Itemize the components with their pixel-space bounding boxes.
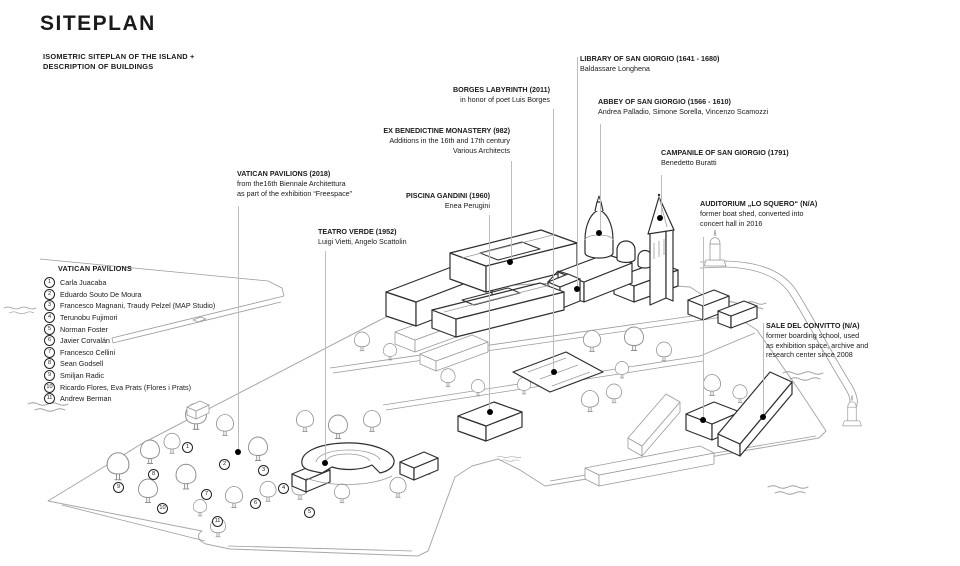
legend-item-10: 10Ricardo Flores, Eva Prats (Flores i Pr… [44, 381, 215, 393]
label-description: concert hall in 2016 [700, 219, 817, 229]
dot-auditorium [700, 417, 706, 423]
dot-teatro [322, 460, 328, 466]
label-description: former boarding school, used [766, 331, 868, 341]
leader-line-vatican [238, 206, 239, 449]
legend-number-badge: 3 [44, 300, 55, 311]
page-subtitle: ISOMETRIC SITEPLAN OF THE ISLAND + DESCR… [43, 52, 195, 71]
lighthouse-icon [704, 230, 726, 266]
label-title: AUDITORIUM „LO SQUERO“ (N/A) [700, 199, 817, 209]
map-marker-8: 8 [148, 469, 159, 480]
legend-architect-name: Norman Foster [60, 325, 108, 334]
label-borges: BORGES LABYRINTH (2011)in honor of poet … [453, 85, 550, 105]
label-description: Various Architects [383, 146, 510, 156]
map-marker-10: 10 [157, 503, 168, 514]
legend-number-badge: 5 [44, 324, 55, 335]
legend-item-3: 3Francesco Magnani, Traudy Pelzel (MAP S… [44, 300, 215, 312]
legend-architect-name: Smiljan Radic [60, 371, 104, 380]
label-description: research center since 2008 [766, 350, 868, 360]
legend-architect-name: Terunobu Fujimori [60, 313, 118, 322]
legend-item-6: 6Javier Corvalán [44, 335, 215, 347]
lighthouse-icon [843, 395, 862, 426]
label-description: Enea Perugini [406, 201, 490, 211]
label-campanile: CAMPANILE OF SAN GIORGIO (1791)Benedetto… [661, 148, 789, 168]
legend-item-11: 11Andrew Berman [44, 393, 215, 405]
legend-number-badge: 4 [44, 312, 55, 323]
legend-architect-name: Ricardo Flores, Eva Prats (Flores i Prat… [60, 383, 191, 392]
legend-architect-name: Francesco Magnani, Traudy Pelzel (MAP St… [60, 301, 215, 310]
leader-line-borges [553, 109, 554, 369]
label-monastery: EX BENEDICTINE MONASTERY (982)Additions … [383, 126, 510, 155]
dot-library [574, 286, 580, 292]
leader-line-campanile [661, 175, 662, 216]
leader-line-piscina [489, 215, 490, 409]
dot-abbey [596, 230, 602, 236]
leader-line-abbey [600, 124, 601, 231]
label-description: former boat shed, converted into [700, 209, 817, 219]
legend-architect-name: Francesco Cellini [60, 348, 115, 357]
legend-item-5: 5Norman Foster [44, 323, 215, 335]
label-description: Luigi Vietti, Angelo Scattolin [318, 237, 407, 247]
dot-sale [760, 414, 766, 420]
label-title: VATICAN PAVILIONS (2018) [237, 169, 352, 179]
map-marker-4: 4 [278, 483, 289, 494]
legend-number-badge: 9 [44, 370, 55, 381]
legend-title: VATICAN PAVILIONS [58, 264, 215, 273]
map-marker-2: 2 [219, 459, 230, 470]
label-teatro: TEATRO VERDE (1952)Luigi Vietti, Angelo … [318, 227, 407, 247]
label-title: EX BENEDICTINE MONASTERY (982) [383, 126, 510, 136]
label-library: LIBRARY OF SAN GIORGIO (1641 - 1680)Bald… [580, 54, 719, 74]
label-auditorium: AUDITORIUM „LO SQUERO“ (N/A)former boat … [700, 199, 817, 228]
map-marker-6: 6 [250, 498, 261, 509]
map-marker-3: 3 [258, 465, 269, 476]
legend-number-badge: 1 [44, 277, 55, 288]
legend-architect-name: Javier Corvalán [60, 336, 110, 345]
legend-number-badge: 10 [44, 382, 55, 393]
page-subtitle-line1: ISOMETRIC SITEPLAN OF THE ISLAND + [43, 52, 195, 62]
label-description: Additions in the 16th and 17th century [383, 136, 510, 146]
legend-item-9: 9Smiljan Radic [44, 370, 215, 382]
legend-number-badge: 8 [44, 358, 55, 369]
legend-item-7: 7Francesco Cellini [44, 347, 215, 359]
label-piscina: PISCINA GANDINI (1960)Enea Perugini [406, 191, 490, 211]
label-title: CAMPANILE OF SAN GIORGIO (1791) [661, 148, 789, 158]
label-description: Baldassare Longhena [580, 64, 719, 74]
dot-campanile [657, 215, 663, 221]
label-description: Andrea Palladio, Simone Sorella, Vincenz… [598, 107, 768, 117]
legend-architect-name: Sean Godsell [60, 359, 103, 368]
legend-number-badge: 11 [44, 393, 55, 404]
label-title: BORGES LABYRINTH (2011) [453, 85, 550, 95]
dot-vatican [235, 449, 241, 455]
legend-item-8: 8Sean Godsell [44, 358, 215, 370]
label-description: from the16th Biennale Architettura [237, 179, 352, 189]
label-abbey: ABBEY OF SAN GIORGIO (1566 - 1610)Andrea… [598, 97, 768, 117]
page-subtitle-line2: DESCRIPTION OF BUILDINGS [43, 62, 195, 72]
legend-architect-name: Eduardo Souto De Moura [60, 290, 142, 299]
leader-line-teatro [325, 251, 326, 460]
label-description: as part of the exhibition “Freespace” [237, 189, 352, 199]
legend-item-2: 2Eduardo Souto De Moura [44, 289, 215, 301]
label-description: as exhibition space, archive and [766, 341, 868, 351]
legend-number-badge: 7 [44, 347, 55, 358]
map-marker-5: 5 [304, 507, 315, 518]
leader-line-monastery [511, 161, 512, 259]
label-sale: SALE DEL CONVITTO (N/A)former boarding s… [766, 321, 868, 360]
leader-line-library [577, 57, 578, 287]
leader-line-auditorium [703, 237, 704, 418]
legend-architect-name: Andrew Berman [60, 394, 112, 403]
vatican-pavilions-legend: VATICAN PAVILIONS 1Carla Juacaba2Eduardo… [44, 264, 215, 405]
map-marker-11: 11 [212, 516, 223, 527]
label-title: TEATRO VERDE (1952) [318, 227, 407, 237]
label-description: Benedetto Buratti [661, 158, 789, 168]
leader-line-sale [763, 323, 764, 414]
siteplan-canvas: SITEPLAN ISOMETRIC SITEPLAN OF THE ISLAN… [0, 0, 960, 566]
map-marker-1: 1 [182, 442, 193, 453]
map-marker-7: 7 [201, 489, 212, 500]
page-title: SITEPLAN [40, 12, 156, 36]
dot-piscina [487, 409, 493, 415]
legend-architect-name: Carla Juacaba [60, 278, 106, 287]
label-title: ABBEY OF SAN GIORGIO (1566 - 1610) [598, 97, 768, 107]
legend-item-4: 4Terunobu Fujimori [44, 312, 215, 324]
dot-borges [551, 369, 557, 375]
label-description: in honor of poet Luis Borges [453, 95, 550, 105]
dot-monastery [507, 259, 513, 265]
label-title: SALE DEL CONVITTO (N/A) [766, 321, 868, 331]
label-title: LIBRARY OF SAN GIORGIO (1641 - 1680) [580, 54, 719, 64]
label-title: PISCINA GANDINI (1960) [406, 191, 490, 201]
label-vatican: VATICAN PAVILIONS (2018)from the16th Bie… [237, 169, 352, 198]
map-marker-9: 9 [113, 482, 124, 493]
legend-number-badge: 6 [44, 335, 55, 346]
legend-item-1: 1Carla Juacaba [44, 277, 215, 289]
legend-number-badge: 2 [44, 289, 55, 300]
